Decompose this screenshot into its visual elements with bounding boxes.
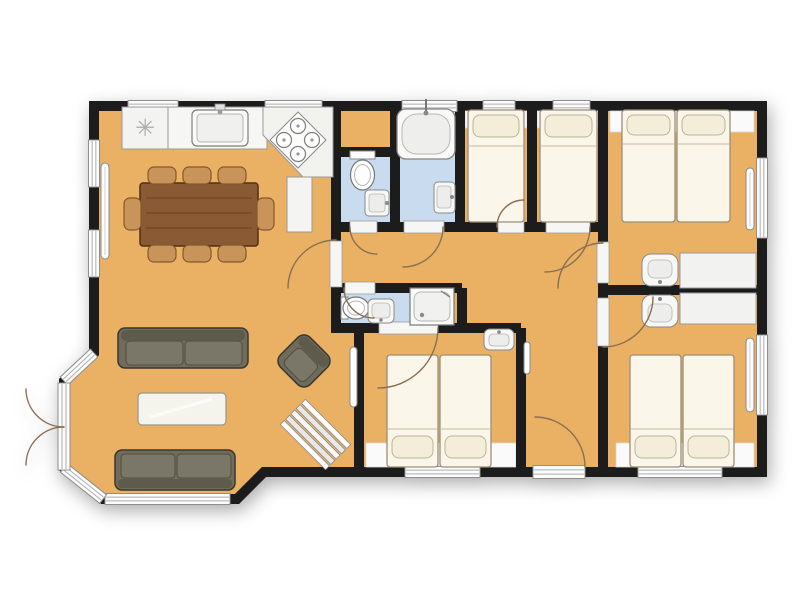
door-opening — [597, 242, 609, 283]
stove-burner-dot — [296, 152, 299, 155]
wc-sink-basin — [369, 194, 385, 212]
door-opening — [350, 221, 377, 233]
bed-pillow — [627, 115, 670, 135]
sofa-cushion — [177, 454, 231, 478]
dining-chair — [148, 167, 176, 184]
mid-bedroom-sink-basin — [489, 334, 509, 346]
bed-pillow — [688, 436, 729, 458]
bathtub-basin — [402, 114, 450, 154]
radiator — [524, 342, 530, 374]
dining-chair — [148, 245, 176, 262]
shower-room-faucet — [379, 318, 383, 322]
entry-door-threshold — [533, 466, 585, 479]
bath-sink-basin — [437, 186, 451, 208]
kitchen-faucet — [215, 104, 225, 110]
bed-pillow — [635, 436, 676, 458]
kitchen-faucet-spout — [218, 110, 223, 115]
vanity-faucet — [658, 280, 662, 284]
vanity-faucet — [658, 297, 662, 301]
floorplan-image: ✳ — [0, 0, 800, 600]
window — [89, 230, 100, 277]
dining-chair — [183, 167, 211, 184]
window — [89, 140, 100, 187]
bed-pillow — [545, 115, 592, 137]
dining-table — [140, 183, 258, 246]
shower-drain — [420, 313, 424, 317]
dining-chair — [124, 198, 141, 230]
sofa-cushion — [126, 341, 183, 365]
radiator — [350, 347, 357, 407]
window — [638, 467, 722, 478]
dining-chair — [183, 245, 211, 262]
sofa-back — [121, 330, 245, 341]
sofa-cushion — [185, 341, 242, 365]
floorplan-canvas: ✳ — [0, 0, 800, 600]
door-opening — [345, 282, 375, 294]
stove-burner-dot — [296, 124, 299, 127]
dining-chair — [218, 167, 246, 184]
wc-faucet — [385, 201, 389, 205]
vanity-sink-basin — [648, 260, 672, 278]
shower-room-sink-basin — [372, 303, 390, 318]
freezer-icon: ✳ — [135, 114, 155, 142]
kitchen-sink-basin — [197, 114, 243, 142]
sofa-back — [118, 479, 232, 488]
shower-tray — [414, 292, 450, 321]
door-opening — [404, 221, 444, 233]
door-opening — [330, 241, 342, 287]
bathtub-faucet-spout — [424, 111, 429, 116]
bath-faucet — [450, 195, 454, 199]
kitchen-island — [287, 177, 312, 232]
door-opening — [597, 298, 609, 346]
dining-chair — [257, 198, 274, 230]
counter — [680, 253, 756, 288]
window — [757, 158, 768, 238]
toilet-tank — [350, 151, 375, 159]
stove-burner-dot — [310, 138, 313, 141]
bed-pillow — [392, 436, 433, 458]
stove-burner-dot — [282, 138, 285, 141]
window — [105, 494, 230, 505]
bed-pillow — [445, 436, 486, 458]
door-opening — [498, 221, 524, 233]
door-opening — [546, 221, 590, 233]
bed-pillow — [473, 115, 519, 137]
window — [405, 467, 480, 478]
dining-chair — [218, 245, 246, 262]
window — [757, 335, 768, 415]
mid-bedroom-faucet — [497, 330, 501, 334]
bed-pillow — [682, 115, 725, 135]
sofa-cushion — [121, 454, 175, 478]
counter — [680, 293, 756, 324]
